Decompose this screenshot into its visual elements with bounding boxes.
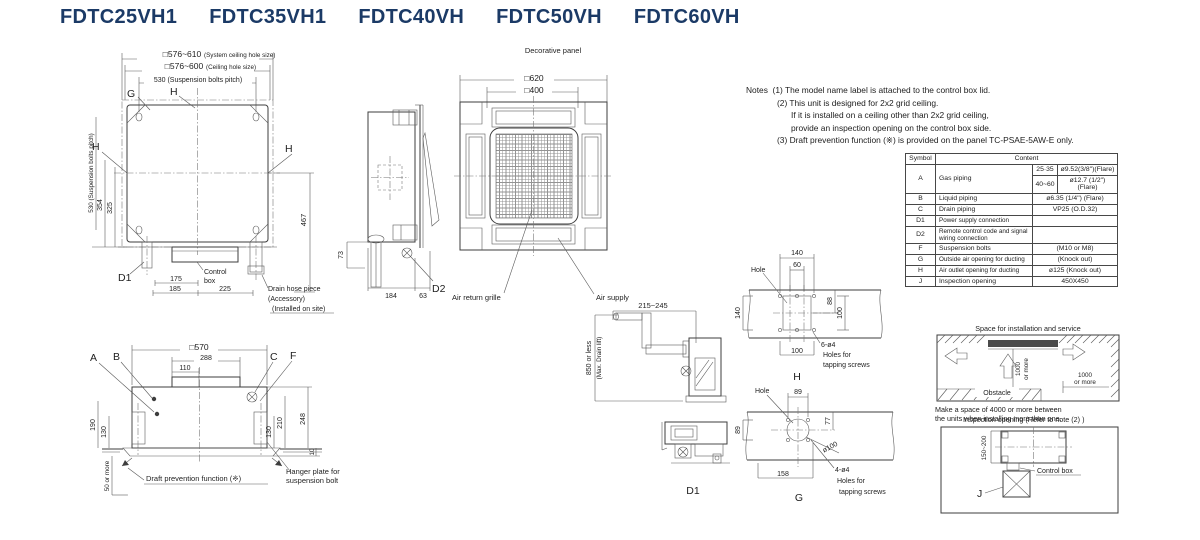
model-name: FDTC50VH (496, 6, 602, 29)
dim-bolt-pitch: 530 (Suspension bolts pitch) (154, 77, 242, 84)
hole-label: Hole (755, 388, 770, 395)
label-d1-detail: D1 (686, 485, 700, 497)
cell-symbol: B (906, 194, 936, 205)
dim-ceiling-hole-note: (Ceiling hole size) (206, 64, 256, 71)
header-symbol: Symbol (906, 154, 936, 165)
symbol-table: Symbol Content A Gas piping 25·35 ø9.52(… (905, 153, 1118, 287)
dim-400: □400 (524, 85, 544, 95)
draft-prevention-label: Draft prevention function (※) (146, 474, 242, 483)
cell-value: VP25 (O.D.32) (1033, 205, 1118, 216)
model-name: FDTC25VH1 (60, 6, 177, 29)
screws-label: 4-ø4 (835, 467, 850, 474)
notes-line: Notes (1) The model name label is attach… (746, 84, 1126, 97)
space-title: Space for installation and service (975, 324, 1080, 333)
dim-bolt-pitch-v: 530 (Suspension bolts pitch) (88, 133, 95, 212)
inspection-title: Inspection opening (Refer to note (2) ) (963, 415, 1084, 424)
dim-158: 158 (777, 471, 789, 478)
notes-text: (1) The model name label is attached to … (773, 85, 991, 95)
dim-60: 60 (793, 262, 801, 269)
dim-89-top: 89 (794, 389, 802, 396)
inspection-linework (941, 427, 1118, 513)
notes-line: (3) Draft prevention function (※) is pro… (777, 134, 1126, 147)
hole-g-drawing: Hole 89 89 77 ø100 158 4-ø4 Holes for ta… (733, 383, 913, 513)
dim-190: 190 (90, 419, 97, 431)
cell-value (1033, 226, 1118, 243)
air-return-grille-label: Air return grille (452, 293, 501, 302)
dim-89-left: 89 (735, 426, 742, 434)
dim-110: 110 (179, 365, 190, 372)
cell-name: Drain piping (936, 205, 1033, 216)
label-j: J (977, 488, 982, 500)
drain-hose-label: (Accessory) (268, 296, 305, 303)
label-h: H (170, 86, 178, 98)
cell-name: Air outlet opening for ducting (936, 265, 1033, 276)
table-row: H Air outlet opening for ducting ø125 (K… (906, 265, 1118, 276)
control-box-label: box (204, 278, 216, 285)
dim-140-top: 140 (791, 250, 803, 257)
cell-range: 40~60 (1033, 175, 1058, 194)
table-row: G Outside air opening for ducting (Knock… (906, 254, 1118, 265)
cell-name: Remote control code and signal wiring co… (936, 226, 1033, 243)
label-d2: D2 (432, 283, 446, 295)
table-row: D1 Power supply connection (906, 215, 1118, 226)
table-row: A Gas piping 25·35 ø9.52(3/8")(Flare) (906, 164, 1118, 175)
notes-line: (2) This unit is designed for 2x2 grid c… (777, 97, 1126, 110)
d1-linework (662, 422, 730, 463)
notes-label: Notes (746, 85, 768, 95)
dim-248: 248 (300, 413, 307, 425)
dim-140-left: 140 (735, 307, 742, 319)
cell-symbol: A (906, 164, 936, 193)
cell-name: Liquid piping (936, 194, 1033, 205)
cell-symbol: F (906, 244, 936, 255)
label-g: G (127, 88, 135, 100)
front-view-drawing: □570 288 110 A B C F 190 130 50 or more … (82, 335, 372, 515)
screws-label: Holes for (837, 478, 866, 485)
hole-h-drawing: Hole 140 60 88 140 100 100 6-ø4 Holes fo… (733, 243, 893, 393)
dim-467: 467 (299, 214, 308, 227)
cell-symbol: G (906, 254, 936, 265)
screws-label: Holes for (823, 352, 852, 359)
dim-184: 184 (385, 293, 397, 300)
dim-10: 10 (309, 448, 316, 456)
label-a: A (90, 352, 97, 364)
notes-line: If it is installed on a ceiling other th… (791, 109, 1126, 122)
plan-view-drawing: □576~610 (System ceiling hole size) □576… (82, 40, 357, 332)
dim-100-right: 100 (837, 307, 844, 319)
dim-225: 225 (219, 286, 231, 293)
dim-max-drain-lift: (Max. Drain lift) (596, 337, 603, 380)
dim-77: 77 (825, 417, 832, 425)
dim-150-200: 150~200 (981, 435, 988, 460)
dim-175: 175 (170, 276, 182, 283)
inspection-drawing: Inspection opening (Refer to note (2) ) … (933, 413, 1123, 518)
air-return-grille-mesh (496, 134, 572, 218)
cell-name: Suspension bolts (936, 244, 1033, 255)
model-title-row: FDTC25VH1 FDTC35VH1 FDTC40VH FDTC50VH FD… (60, 6, 740, 29)
hanger-plate-label: Hanger plate for (286, 467, 340, 476)
space-drawing: Space for installation and service 1000 … (933, 323, 1123, 423)
control-box-label: Control box (1037, 468, 1073, 475)
panel-title: Decorative panel (525, 46, 582, 55)
cell-name: Outside air opening for ducting (936, 254, 1033, 265)
notes-line: provide an inspection opening on the con… (791, 122, 1126, 135)
model-name: FDTC35VH1 (209, 6, 326, 29)
cell-value: (Knock out) (1033, 254, 1118, 265)
label-f: F (290, 350, 296, 362)
screws-label: 6-ø4 (821, 342, 836, 349)
cell-value: 450X450 (1033, 276, 1118, 287)
dim-130-right: 130 (266, 426, 273, 438)
drain-hose-label: Drain hose piece (268, 286, 321, 293)
side-linework (347, 105, 439, 291)
label-d1: D1 (118, 272, 132, 284)
screws-label: tapping screws (839, 489, 886, 496)
table-row: D2 Remote control code and signal wiring… (906, 226, 1118, 243)
dim-185: 185 (169, 286, 181, 293)
dim-620: □620 (524, 73, 544, 83)
drain-hose-label: (Installed on site) (272, 306, 325, 313)
cell-symbol: J (906, 276, 936, 287)
dim-288: 288 (200, 355, 212, 362)
table-header-row: Symbol Content (906, 154, 1118, 165)
dim-50-or-more: 50 or more (104, 460, 111, 491)
screws-label: tapping screws (823, 362, 870, 369)
dim-88: 88 (827, 297, 834, 305)
cell-value-line: ø12.7 (1/2") (1060, 177, 1115, 185)
drawing-sheet: FDTC25VH1 FDTC35VH1 FDTC40VH FDTC50VH FD… (0, 0, 1200, 540)
control-box-label: Control (204, 269, 227, 276)
model-name: FDTC40VH (358, 6, 464, 29)
dim-system-hole: □576~610 (163, 49, 202, 59)
dim-ceiling-hole: □576~600 (165, 61, 204, 71)
dim-354: 354 (97, 199, 104, 211)
hanger-plate-label: suspension bolt (286, 476, 339, 485)
dim-d100: ø100 (822, 441, 839, 455)
hole-label: Hole (751, 267, 766, 274)
label-h: H (285, 143, 293, 155)
dim-system-hole-note: (System ceiling hole size) (204, 52, 275, 59)
label-b: B (113, 351, 120, 363)
dim-325: 325 (107, 202, 114, 214)
cell-symbol: D2 (906, 226, 936, 243)
cell-name: Gas piping (936, 164, 1033, 193)
cell-symbol: D1 (906, 215, 936, 226)
cell-value-line: (Flare) (1060, 184, 1115, 192)
dim-570: □570 (189, 342, 209, 352)
dim-100-bottom: 100 (791, 348, 803, 355)
cell-range: 25·35 (1033, 164, 1058, 175)
dim-or-more-vertical: or more (1023, 358, 1030, 380)
dim-210: 210 (277, 417, 284, 429)
label-h-detail: H (793, 371, 801, 383)
obstacle-label: Obstacle (983, 390, 1011, 397)
cell-value: (M10 or M8) (1033, 244, 1118, 255)
cell-value: ø6.35 (1/4") (Flare) (1033, 194, 1118, 205)
hole-g-linework (743, 393, 894, 478)
table-row: J Inspection opening 450X450 (906, 276, 1118, 287)
dim-1000-right: 1000 (1078, 372, 1093, 379)
dim-63: 63 (419, 293, 427, 300)
cell-value: ø125 (Knock out) (1033, 265, 1118, 276)
cell-name: Power supply connection (936, 215, 1033, 226)
cell-symbol: H (906, 265, 936, 276)
dim-130-left: 130 (101, 426, 108, 438)
cell-value: ø9.52(3/8")(Flare) (1058, 164, 1118, 175)
label-g-detail: G (795, 492, 803, 504)
label-c: C (270, 351, 278, 363)
dim-73: 73 (338, 251, 345, 259)
dim-850-or-less: 850 or less (586, 340, 593, 375)
cell-name: Inspection opening (936, 276, 1033, 287)
dim-or-more-right: or more (1074, 379, 1096, 386)
cell-value: ø12.7 (1/2")(Flare) (1058, 175, 1118, 194)
model-name: FDTC60VH (634, 6, 740, 29)
dim-215-245: 215~245 (638, 301, 667, 310)
table-row: F Suspension bolts (M10 or M8) (906, 244, 1118, 255)
cell-value (1033, 215, 1118, 226)
table-row: B Liquid piping ø6.35 (1/4") (Flare) (906, 194, 1118, 205)
cell-symbol: C (906, 205, 936, 216)
table-row: C Drain piping VP25 (O.D.32) (906, 205, 1118, 216)
notes-block: Notes (1) The model name label is attach… (746, 84, 1126, 147)
drain-linework (595, 301, 726, 402)
header-content: Content (936, 154, 1118, 165)
dim-1000-vertical: 1000 (1015, 362, 1022, 377)
